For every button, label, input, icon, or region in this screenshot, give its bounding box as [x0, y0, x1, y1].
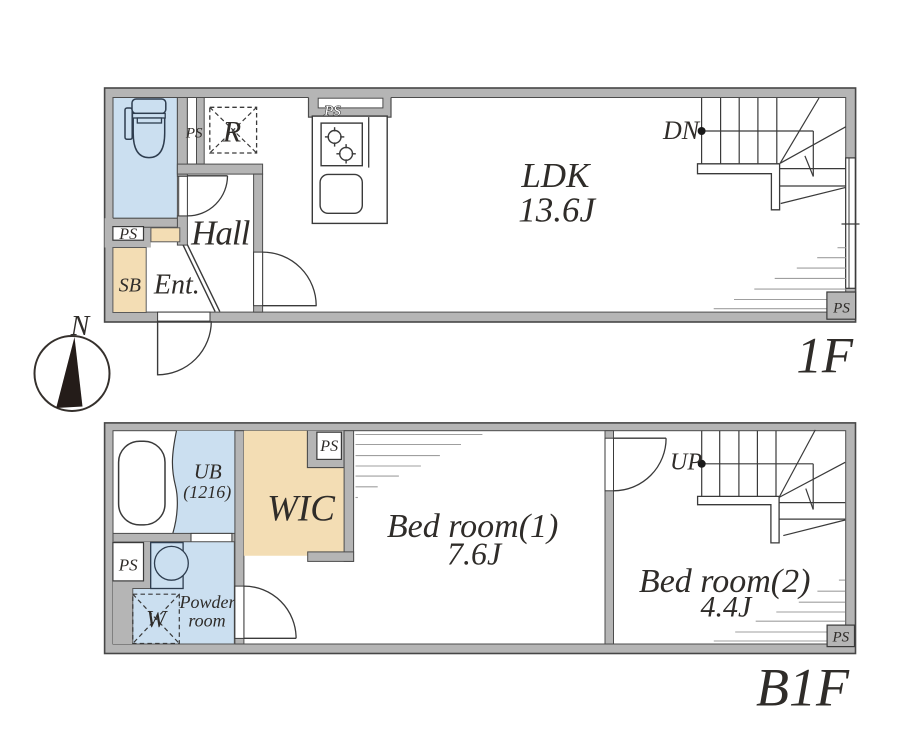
svg-text:Ent.: Ent. [153, 270, 200, 301]
svg-text:W: W [146, 607, 168, 633]
svg-text:1F: 1F [796, 329, 854, 385]
svg-text:R: R [222, 116, 241, 149]
svg-text:PS: PS [185, 126, 203, 142]
svg-text:PS: PS [832, 301, 850, 317]
svg-text:UB: UB [194, 460, 222, 484]
svg-text:B1F: B1F [756, 658, 850, 718]
svg-text:PS: PS [831, 630, 849, 646]
svg-text:PS: PS [118, 226, 137, 243]
svg-text:4.4J: 4.4J [700, 591, 753, 624]
svg-text:DN: DN [662, 116, 701, 145]
svg-text:LDK: LDK [520, 156, 591, 195]
svg-text:SB: SB [119, 275, 141, 297]
svg-text:WIC: WIC [267, 489, 336, 530]
svg-text:N: N [70, 311, 91, 342]
svg-text:room: room [188, 610, 225, 630]
svg-text:7.6J: 7.6J [447, 536, 503, 572]
svg-text:13.6J: 13.6J [518, 191, 596, 230]
svg-text:Powder: Powder [179, 592, 237, 612]
svg-text:PS: PS [118, 556, 138, 575]
svg-text:PS: PS [319, 438, 338, 455]
svg-text:Hall: Hall [190, 214, 250, 253]
svg-text:UP: UP [670, 450, 702, 476]
svg-text:(1216): (1216) [183, 482, 231, 503]
